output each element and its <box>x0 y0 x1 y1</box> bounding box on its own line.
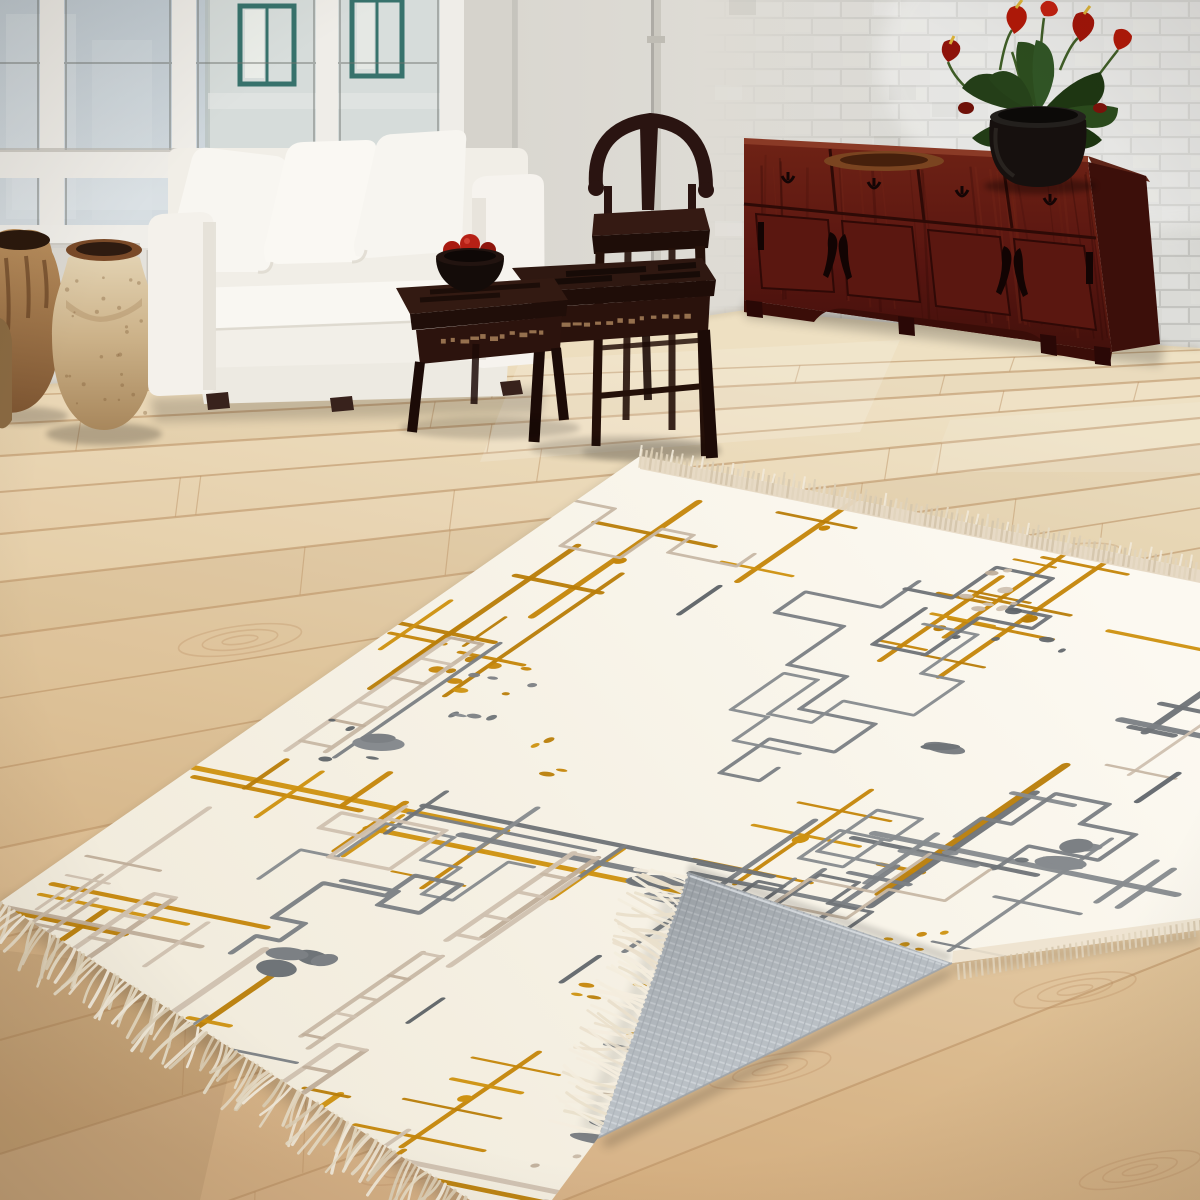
scene-svg <box>0 0 1200 1200</box>
vignette <box>0 0 1200 1200</box>
living-room-photo <box>0 0 1200 1200</box>
